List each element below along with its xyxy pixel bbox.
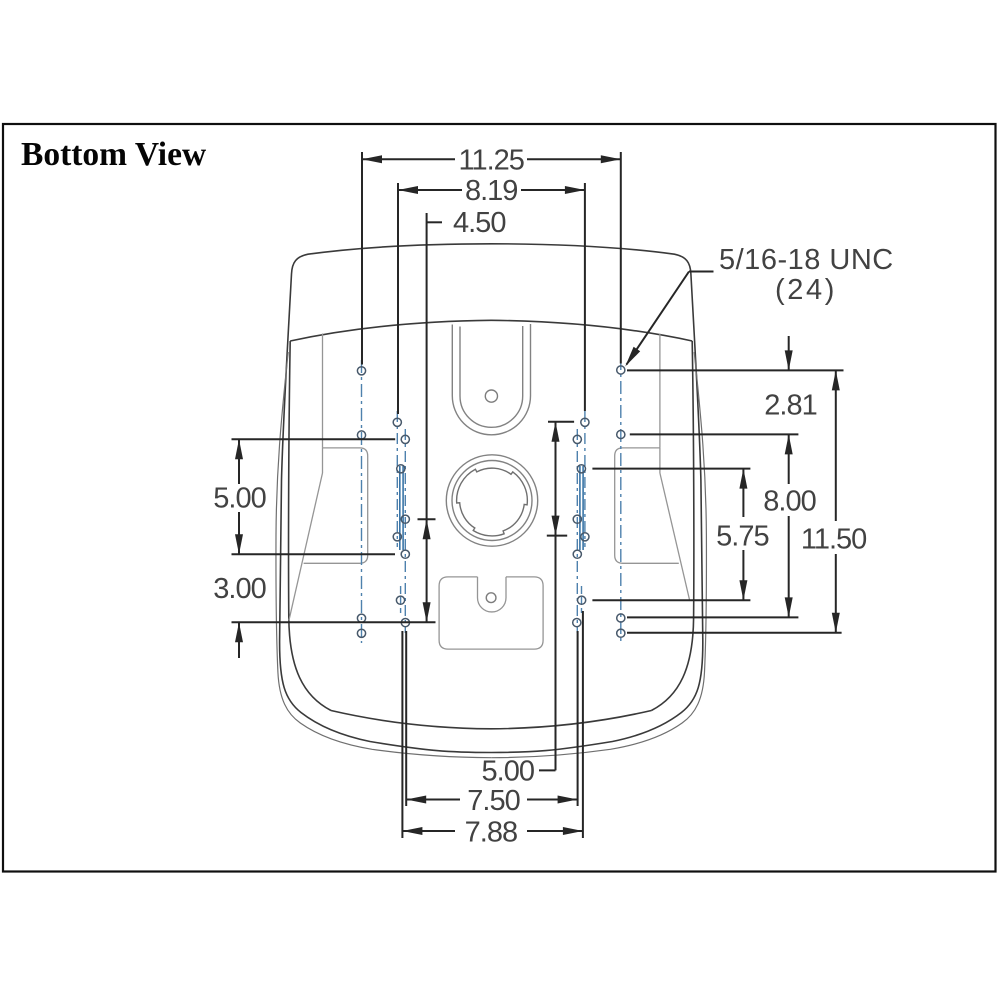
svg-text:7.88: 7.88 <box>465 816 517 848</box>
svg-text:7.50: 7.50 <box>467 785 519 817</box>
svg-text:5.75: 5.75 <box>716 521 768 553</box>
svg-text:8.19: 8.19 <box>465 175 517 207</box>
svg-text:4.50: 4.50 <box>453 207 505 239</box>
svg-text:5.00: 5.00 <box>482 755 534 787</box>
svg-text:2.81: 2.81 <box>764 390 816 422</box>
svg-text:8.00: 8.00 <box>763 486 815 518</box>
svg-text:5.00: 5.00 <box>213 483 265 515</box>
svg-text:11.50: 11.50 <box>801 524 866 556</box>
svg-text:Bottom View: Bottom View <box>21 136 207 173</box>
svg-text:3.00: 3.00 <box>213 573 265 605</box>
svg-text:5/16-18 UNC: 5/16-18 UNC <box>719 244 894 276</box>
svg-text:(24): (24) <box>775 274 837 306</box>
svg-text:11.25: 11.25 <box>458 145 523 177</box>
